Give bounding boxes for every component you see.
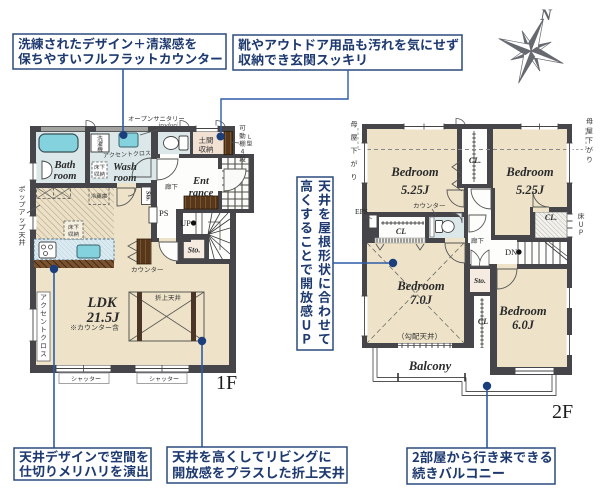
svg-text:Balcony: Balcony — [408, 359, 452, 373]
svg-text:irodori: irodori — [158, 122, 178, 130]
svg-text:LDK: LDK — [87, 295, 118, 311]
svg-text:Bath: Bath — [53, 160, 75, 171]
svg-text:21.5J: 21.5J — [86, 310, 120, 326]
svg-text:N: N — [539, 7, 553, 24]
svg-text:CL.: CL. — [469, 156, 481, 165]
svg-text:5.25J: 5.25J — [516, 183, 545, 197]
svg-text:Sto.: Sto. — [145, 191, 152, 202]
svg-text:PS: PS — [159, 208, 169, 218]
svg-text:Sto.: Sto. — [188, 246, 201, 255]
svg-text:2F: 2F — [552, 401, 573, 423]
svg-text:CL: CL — [396, 227, 406, 236]
svg-text:1F: 1F — [216, 372, 237, 394]
svg-text:Bedroom: Bedroom — [390, 165, 439, 179]
svg-text:Wash: Wash — [113, 162, 137, 173]
svg-text:room: room — [54, 171, 77, 182]
svg-text:Bedroom: Bedroom — [505, 165, 554, 179]
svg-text:Bedroom: Bedroom — [498, 304, 547, 318]
svg-text:6.0J: 6.0J — [512, 318, 535, 332]
svg-text:UP: UP — [180, 218, 191, 228]
svg-text:5.25J: 5.25J — [401, 183, 430, 197]
svg-text:CL.: CL. — [545, 213, 557, 222]
svg-text:Ent: Ent — [192, 176, 210, 187]
svg-text:room: room — [114, 173, 137, 184]
svg-text:rance: rance — [189, 188, 214, 199]
svg-text:CL: CL — [478, 317, 488, 326]
svg-text:EPS: EPS — [355, 207, 368, 216]
svg-text:Sto.: Sto. — [474, 276, 486, 285]
svg-text:DN: DN — [505, 247, 517, 257]
